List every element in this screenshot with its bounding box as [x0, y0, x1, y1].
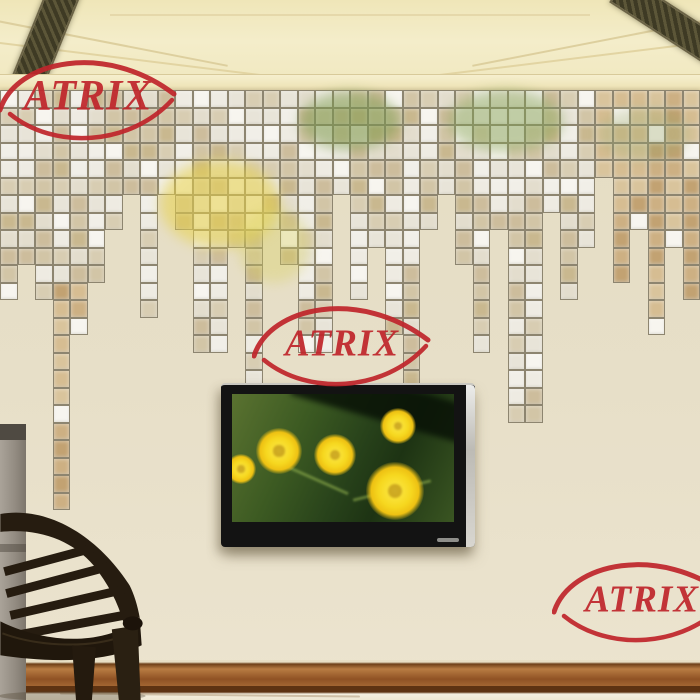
mosaic-tile [18, 195, 36, 213]
mosaic-tile [508, 160, 526, 178]
mosaic-tile [245, 353, 263, 371]
mosaic-tile [420, 178, 438, 196]
mosaic-tile [403, 213, 421, 231]
mosaic-tile [385, 300, 403, 318]
mosaic-tile [525, 248, 543, 266]
tv-screen-flower [366, 462, 424, 520]
mosaic-tile [473, 265, 491, 283]
mosaic-tile [53, 90, 71, 108]
mosaic-tile [53, 475, 71, 493]
mosaic-tile [578, 178, 596, 196]
mosaic-tile [228, 195, 246, 213]
tv-screen-flower [380, 408, 416, 444]
mosaic-tile [315, 283, 333, 301]
mosaic-tile [473, 335, 491, 353]
mosaic-tile [403, 353, 421, 371]
mosaic-tile [88, 230, 106, 248]
mosaic-tile [455, 195, 473, 213]
mosaic-tile [298, 300, 316, 318]
mosaic-tile [543, 125, 561, 143]
mosaic-tile [53, 458, 71, 476]
mosaic-tile [403, 125, 421, 143]
mosaic-tile [0, 230, 18, 248]
mosaic-tile [665, 108, 683, 126]
mosaic-tile [140, 90, 158, 108]
mosaic-tile [70, 230, 88, 248]
mosaic-tile [490, 213, 508, 231]
mosaic-tile [648, 230, 666, 248]
mosaic-tile [105, 108, 123, 126]
mosaic-tile [123, 178, 141, 196]
tv-screen-flower [256, 428, 302, 474]
mosaic-tile [473, 318, 491, 336]
mosaic-tile [0, 265, 18, 283]
mosaic-tile [508, 248, 526, 266]
mosaic-tile [665, 178, 683, 196]
mosaic-tile [228, 230, 246, 248]
mosaic-tile [473, 178, 491, 196]
mosaic-tile [123, 108, 141, 126]
mosaic-tile [245, 178, 263, 196]
mosaic-tile [210, 178, 228, 196]
mosaic-tile [245, 318, 263, 336]
mosaic-tile [35, 108, 53, 126]
mosaic-tile [35, 143, 53, 161]
mosaic-tile [385, 178, 403, 196]
mosaic-tile [683, 213, 700, 231]
mosaic-tile [560, 248, 578, 266]
mosaic-tile [473, 160, 491, 178]
mosaic-tile [648, 160, 666, 178]
mosaic-tile [0, 248, 18, 266]
mosaic-tile [140, 125, 158, 143]
mosaic-tile [403, 160, 421, 178]
mosaic-tile [263, 160, 281, 178]
mosaic-tile [613, 230, 631, 248]
mosaic-tile [105, 178, 123, 196]
mosaic-tile [280, 90, 298, 108]
mosaic-tile [280, 195, 298, 213]
mosaic-tile [175, 195, 193, 213]
mosaic-tile [333, 108, 351, 126]
mosaic-tile [53, 370, 71, 388]
mosaic-tile [105, 213, 123, 231]
mosaic-tile [193, 108, 211, 126]
mosaic-tile [613, 195, 631, 213]
mosaic-tile [245, 195, 263, 213]
mosaic-tile [438, 125, 456, 143]
mosaic-tile [140, 283, 158, 301]
mosaic-tile [315, 318, 333, 336]
mosaic-tile [490, 160, 508, 178]
mosaic-tile [473, 248, 491, 266]
mosaic-tile [473, 108, 491, 126]
mosaic-tile [613, 90, 631, 108]
mosaic-tile [595, 143, 613, 161]
mosaic-tile [403, 318, 421, 336]
mosaic-tile [385, 90, 403, 108]
tv-screen-flower [232, 454, 256, 484]
mosaic-tile [53, 318, 71, 336]
mosaic-tile [280, 125, 298, 143]
mosaic-tile [683, 125, 700, 143]
mosaic-tile [228, 178, 246, 196]
mosaic-tile [683, 283, 700, 301]
mosaic-tile [630, 160, 648, 178]
mosaic-tile [193, 195, 211, 213]
mosaic-tile [438, 160, 456, 178]
chair [0, 506, 152, 700]
mosaic-tile [350, 143, 368, 161]
mosaic-tile [508, 195, 526, 213]
mosaic-tile [210, 300, 228, 318]
mosaic-tile [630, 125, 648, 143]
mosaic-tile [665, 213, 683, 231]
mosaic-tile [140, 160, 158, 178]
mosaic-tile [350, 283, 368, 301]
mosaic-tile [70, 283, 88, 301]
mosaic-tile [280, 108, 298, 126]
mosaic-tile [683, 160, 700, 178]
mosaic-tile [88, 90, 106, 108]
mosaic-tile [280, 143, 298, 161]
mosaic-tile [455, 143, 473, 161]
mosaic-tile [35, 265, 53, 283]
mosaic-tile [403, 248, 421, 266]
mosaic-tile [315, 125, 333, 143]
mosaic-tile [333, 143, 351, 161]
mosaic-tile [403, 265, 421, 283]
mosaic-tile [560, 265, 578, 283]
mosaic-tile [210, 213, 228, 231]
mosaic-tile [613, 248, 631, 266]
ceiling [0, 0, 700, 92]
mosaic-tile [473, 300, 491, 318]
mosaic-tile [0, 283, 18, 301]
mosaic-tile [53, 300, 71, 318]
mosaic-tile [70, 300, 88, 318]
mosaic-tile [158, 108, 176, 126]
mosaic-tile [70, 160, 88, 178]
room-scene: ATRIX ATRIX ATRIX [0, 0, 700, 700]
mosaic-tile [525, 388, 543, 406]
mosaic-tile [0, 143, 18, 161]
mosaic-tile [385, 195, 403, 213]
mosaic-tile [438, 90, 456, 108]
mosaic-tile [473, 90, 491, 108]
mosaic-tile [315, 108, 333, 126]
mosaic-tile [140, 108, 158, 126]
mosaic-tile [263, 125, 281, 143]
mosaic-tile [280, 248, 298, 266]
mosaic-tile [508, 353, 526, 371]
mosaic-tile [193, 300, 211, 318]
mosaic-tile [368, 213, 386, 231]
mosaic-tile [683, 108, 700, 126]
mosaic-tile [70, 178, 88, 196]
mosaic-tile [455, 160, 473, 178]
mosaic-tile [123, 160, 141, 178]
mosaic-tile [70, 90, 88, 108]
mosaic-tile [123, 143, 141, 161]
mosaic-tile [648, 283, 666, 301]
mosaic-tile [543, 90, 561, 108]
mosaic-tile [123, 90, 141, 108]
ceiling-lattice-vent-right [609, 0, 700, 69]
mosaic-tile [403, 108, 421, 126]
mosaic-tile [210, 335, 228, 353]
mosaic-tile [53, 195, 71, 213]
mosaic-tile [35, 178, 53, 196]
brand-watermark-bottom-right: ATRIX [552, 552, 700, 648]
mosaic-tile [665, 90, 683, 108]
mosaic-tile [420, 90, 438, 108]
mosaic-tile [648, 143, 666, 161]
mosaic-tile [0, 178, 18, 196]
tv-screen-flower [314, 434, 356, 476]
mosaic-tile [473, 125, 491, 143]
mosaic-tile [350, 90, 368, 108]
mosaic-tile [35, 283, 53, 301]
mosaic-tile [263, 143, 281, 161]
mosaic-tile [298, 143, 316, 161]
mosaic-tile [245, 230, 263, 248]
mosaic-tile [350, 265, 368, 283]
mosaic-tile [560, 195, 578, 213]
mosaic-tile [158, 178, 176, 196]
mosaic-tile [280, 213, 298, 231]
mosaic-tile [368, 108, 386, 126]
mosaic-tile [228, 160, 246, 178]
mosaic-tile [665, 230, 683, 248]
mosaic-tile [175, 178, 193, 196]
mosaic-tile [543, 178, 561, 196]
mosaic-tile [53, 440, 71, 458]
mosaic-tile [420, 195, 438, 213]
mosaic-tile [140, 213, 158, 231]
tv-side-trim [466, 385, 475, 547]
mosaic-tile [508, 405, 526, 423]
mosaic-tile [473, 143, 491, 161]
mosaic-tile [368, 178, 386, 196]
mosaic-tile [298, 213, 316, 231]
mosaic-tile [193, 178, 211, 196]
mosaic-tile [210, 248, 228, 266]
mosaic-tile [403, 230, 421, 248]
mosaic-tile [53, 283, 71, 301]
mosaic-tile [368, 195, 386, 213]
mosaic-tile [298, 283, 316, 301]
mosaic-tile [525, 283, 543, 301]
mosaic-tile [473, 230, 491, 248]
mosaic-tile [105, 160, 123, 178]
mosaic-tile [263, 213, 281, 231]
mosaic-tile [508, 143, 526, 161]
mosaic-tile [0, 213, 18, 231]
mosaic-tile [508, 388, 526, 406]
mosaic-tile [263, 90, 281, 108]
mosaic-tile [613, 125, 631, 143]
mosaic-tile [53, 125, 71, 143]
mosaic-tile [193, 318, 211, 336]
mosaic-tile [525, 90, 543, 108]
mosaic-tile [455, 125, 473, 143]
mosaic-tile [648, 125, 666, 143]
mosaic-tile [385, 108, 403, 126]
mosaic-tile [53, 213, 71, 231]
mosaic-tile [298, 90, 316, 108]
mosaic-tile [315, 178, 333, 196]
mosaic-tile [263, 108, 281, 126]
mosaic-tile [648, 265, 666, 283]
mosaic-tile [140, 248, 158, 266]
mosaic-tile [525, 300, 543, 318]
mosaic-tile [35, 90, 53, 108]
mosaic-tile [490, 108, 508, 126]
mosaic-tile [263, 195, 281, 213]
mosaic-tile [53, 230, 71, 248]
mosaic-tile [368, 160, 386, 178]
mosaic-tile [315, 90, 333, 108]
mosaic-tile [175, 108, 193, 126]
mosaic-tile [420, 160, 438, 178]
mosaic-tile [630, 178, 648, 196]
mosaic-tile [193, 230, 211, 248]
mosaic-tile [438, 178, 456, 196]
mosaic-tile [630, 213, 648, 231]
mosaic-tile [648, 248, 666, 266]
mosaic-tile [665, 143, 683, 161]
mosaic-tile [245, 248, 263, 266]
mosaic-tile [70, 125, 88, 143]
mosaic-tile [18, 178, 36, 196]
mosaic-tile [35, 230, 53, 248]
mosaic-tile [88, 265, 106, 283]
mosaic-tile [193, 213, 211, 231]
mosaic-tile [53, 388, 71, 406]
tv [221, 383, 475, 547]
mosaic-tile [508, 90, 526, 108]
mosaic-tile [245, 213, 263, 231]
mosaic-tile [210, 125, 228, 143]
mosaic-tile [648, 213, 666, 231]
mosaic-tile [333, 90, 351, 108]
mosaic-tile [508, 318, 526, 336]
mosaic-tile [298, 195, 316, 213]
mosaic-tile [315, 265, 333, 283]
mosaic-tile [35, 160, 53, 178]
mosaic-tile [683, 195, 700, 213]
mosaic-tile [508, 178, 526, 196]
mosaic-tile [525, 318, 543, 336]
mosaic-tile [315, 213, 333, 231]
mosaic-tile [210, 195, 228, 213]
mosaic-tile [70, 265, 88, 283]
mosaic-tile [560, 178, 578, 196]
mosaic-tile [350, 230, 368, 248]
mosaic-tile [508, 213, 526, 231]
mosaic-tile [578, 195, 596, 213]
mosaic-tile [105, 143, 123, 161]
mosaic-tile [665, 195, 683, 213]
mosaic-tile [210, 90, 228, 108]
mosaic-tile [420, 125, 438, 143]
mosaic-tile [385, 230, 403, 248]
mosaic-tile [683, 143, 700, 161]
mosaic-tile [175, 125, 193, 143]
mosaic-tile [210, 160, 228, 178]
mosaic-tile [420, 143, 438, 161]
pillar-cap [0, 424, 26, 440]
mosaic-tile [578, 90, 596, 108]
mosaic-tile [70, 213, 88, 231]
mosaic-tile [245, 283, 263, 301]
mosaic-tile [18, 248, 36, 266]
mosaic-tile [245, 335, 263, 353]
mosaic-tile [298, 108, 316, 126]
mosaic-tile [385, 283, 403, 301]
mosaic-tile [18, 213, 36, 231]
mosaic-tile [105, 195, 123, 213]
mosaic-tile [648, 318, 666, 336]
mosaic-tile [140, 230, 158, 248]
mosaic-tile [175, 160, 193, 178]
mosaic-tile [70, 318, 88, 336]
mosaic-tile [385, 318, 403, 336]
mosaic-tile [630, 108, 648, 126]
mosaic-tile [578, 230, 596, 248]
mosaic-tile [245, 300, 263, 318]
mosaic-tile [543, 108, 561, 126]
mosaic-tile [53, 248, 71, 266]
mosaic-tile [0, 125, 18, 143]
mosaic-tile [315, 335, 333, 353]
mosaic-tile [595, 90, 613, 108]
mosaic-tile [175, 213, 193, 231]
mosaic-tile [18, 230, 36, 248]
tv-screen-dark-foliage [290, 394, 454, 444]
mosaic-tile [455, 213, 473, 231]
mosaic-tile [175, 143, 193, 161]
brand-watermark-text: ATRIX [552, 577, 700, 622]
mosaic-tile [263, 178, 281, 196]
mosaic-tile [385, 265, 403, 283]
mosaic-tile [140, 265, 158, 283]
mosaic-tile [630, 195, 648, 213]
mosaic-tile [18, 108, 36, 126]
mosaic-tile [473, 195, 491, 213]
mosaic-tile [210, 283, 228, 301]
mosaic-tile [105, 90, 123, 108]
mosaic-tile [298, 335, 316, 353]
mosaic-tile [508, 335, 526, 353]
mosaic-tile [245, 160, 263, 178]
mosaic-tile [683, 230, 700, 248]
mosaic-tile [648, 178, 666, 196]
mosaic-tile [648, 300, 666, 318]
mosaic-tile [333, 160, 351, 178]
mosaic-tile [315, 143, 333, 161]
mosaic-tile [525, 195, 543, 213]
mosaic-tile [70, 195, 88, 213]
mosaic-tile [35, 213, 53, 231]
mosaic-tile [245, 143, 263, 161]
mosaic-tile [683, 248, 700, 266]
mosaic-tile [18, 90, 36, 108]
mosaic-tile [385, 248, 403, 266]
mosaic-tile [315, 300, 333, 318]
mosaic-tile [385, 143, 403, 161]
